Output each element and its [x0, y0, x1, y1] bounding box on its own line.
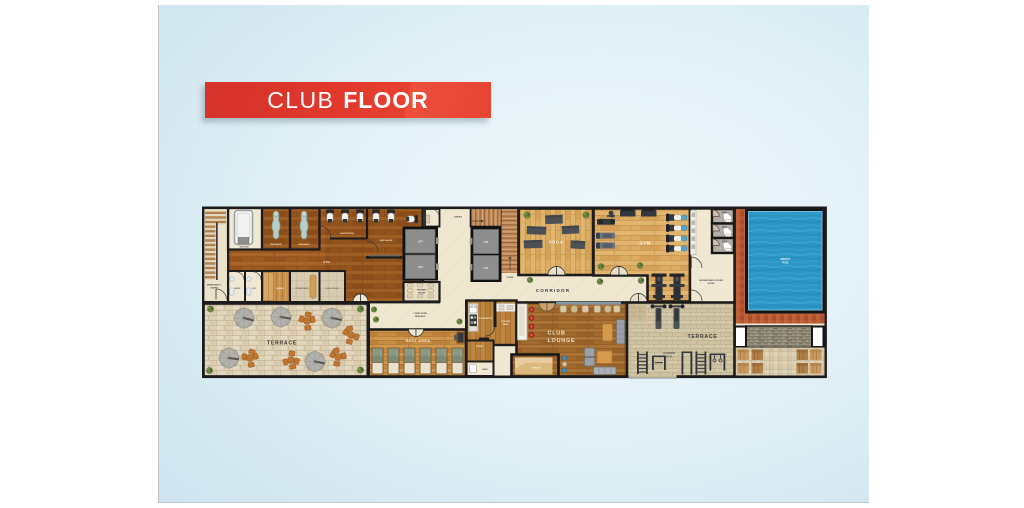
svg-text:HAIR SALON: HAIR SALON [380, 239, 393, 242]
svg-text:ROOM: ROOM [708, 283, 715, 285]
svg-text:CLUB: CLUB [548, 331, 566, 337]
svg-text:GYM: GYM [639, 241, 650, 246]
svg-text:SAUNA: SAUNA [276, 287, 284, 290]
svg-text:BAR: BAR [503, 323, 508, 326]
svg-text:BATH: BATH [722, 240, 728, 243]
svg-text:COFFEE: COFFEE [501, 321, 510, 323]
svg-text:BATH: BATH [722, 226, 728, 229]
svg-text:EMERGENCY: EMERGENCY [207, 285, 222, 287]
svg-text:BATH: BATH [482, 368, 488, 371]
svg-text:CORRIDOR: CORRIDOR [536, 288, 571, 293]
svg-text:BATH: BATH [235, 287, 241, 290]
svg-text:W.C: W.C [253, 288, 257, 290]
svg-text:OUTDOOR: OUTDOOR [663, 353, 675, 355]
svg-text:MASSAGE: MASSAGE [298, 243, 310, 246]
svg-text:LIFT: LIFT [418, 241, 424, 244]
svg-text:MASSAGE: MASSAGE [270, 243, 282, 246]
svg-text:STAIRS: STAIRS [454, 216, 462, 219]
svg-text:YOGA: YOGA [549, 240, 564, 245]
svg-text:STORE: STORE [476, 346, 484, 348]
svg-text:JACUZZI: JACUZZI [239, 246, 249, 249]
svg-text:7 FEET WIDE: 7 FEET WIDE [413, 313, 427, 315]
svg-text:LIFT: LIFT [418, 266, 424, 269]
svg-text:REST AREA: REST AREA [406, 339, 431, 343]
svg-text:DOWN: DOWN [507, 277, 514, 279]
svg-text:GYM: GYM [666, 356, 671, 358]
svg-text:STEAM BATH: STEAM BATH [295, 287, 309, 290]
svg-text:SHOWER AND LOCKER: SHOWER AND LOCKER [699, 279, 723, 282]
svg-text:PRAYER: PRAYER [417, 289, 426, 292]
svg-text:LIFT: LIFT [483, 267, 489, 270]
svg-text:LOUNGE: LOUNGE [548, 338, 576, 344]
svg-text:BATH: BATH [722, 211, 728, 214]
svg-text:LIFT: LIFT [483, 241, 489, 244]
svg-text:PASSAGE: PASSAGE [415, 315, 426, 318]
svg-text:INFINITY: INFINITY [780, 258, 791, 261]
svg-text:SALON ROOM: SALON ROOM [340, 232, 354, 235]
svg-text:KITCHENETTE: KITCHENETTE [479, 318, 493, 320]
svg-text:SPA: SPA [323, 260, 331, 264]
svg-text:POOL: POOL [782, 262, 790, 265]
svg-text:TERRACE: TERRACE [267, 341, 297, 347]
svg-text:CHILL ROOM: CHILL ROOM [325, 288, 338, 290]
svg-text:ROOM: ROOM [418, 293, 425, 295]
svg-text:LIBRARY: LIBRARY [531, 367, 541, 370]
svg-text:TERRACE: TERRACE [688, 334, 718, 340]
